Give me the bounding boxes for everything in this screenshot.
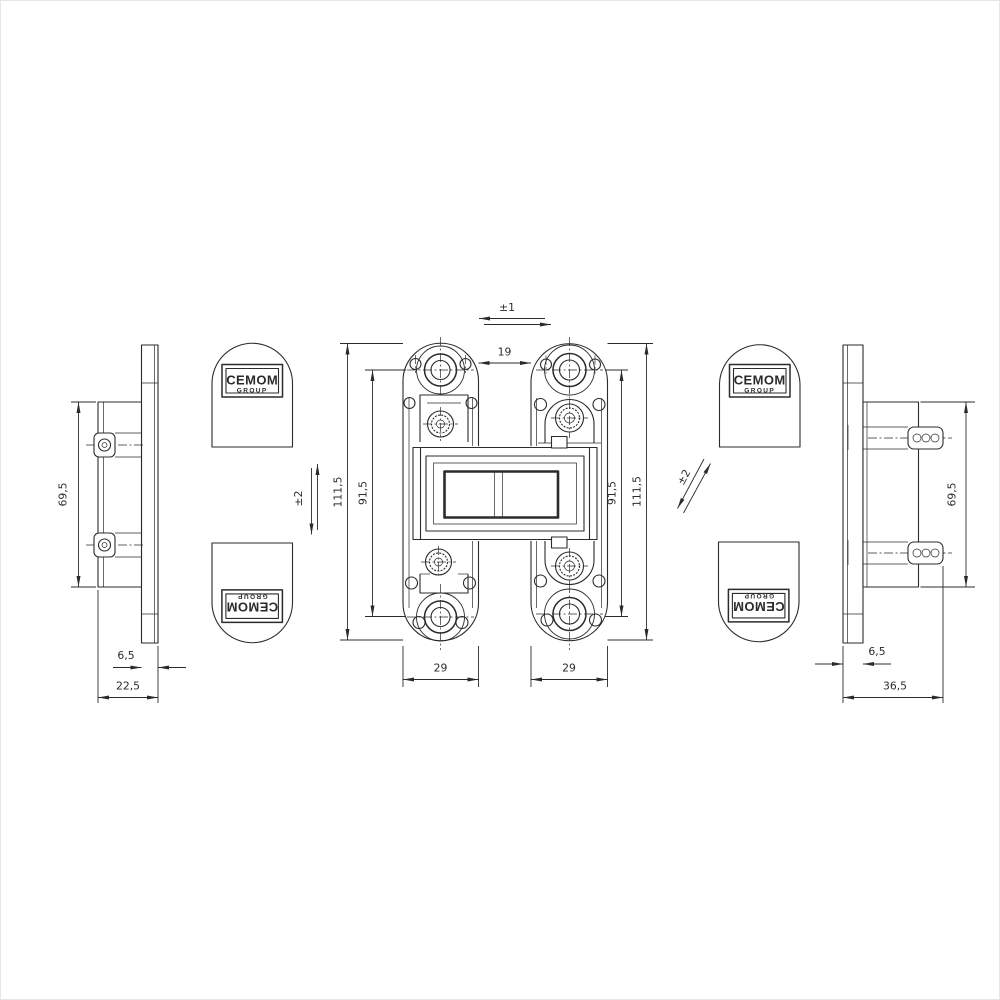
hinge-technical-drawing: 69,5 6,5 22,5 CEMOM GROUP CEMOM GROUP (0, 0, 1000, 1000)
face-plate-edge (843, 345, 863, 643)
brand-sub: GROUP (744, 388, 775, 395)
hinge-body-side (98, 402, 142, 587)
brand-sub: GROUP (237, 388, 268, 395)
dim-label: 111,5 (631, 476, 644, 507)
dim-label: 6,5 (117, 649, 134, 662)
dim-label: 69,5 (57, 482, 70, 506)
dim-label: 29 (434, 662, 448, 675)
brand-name: CEMOM (226, 373, 278, 388)
brand-logo-rotated: CEMOM GROUP (728, 589, 789, 622)
dim-label: ±2 (292, 491, 305, 507)
brand-logo: CEMOM GROUP (222, 365, 283, 398)
spring-clip (94, 533, 115, 557)
dim-label: 6,5 (868, 645, 885, 658)
dim-label: 91,5 (606, 481, 619, 505)
dim-label: 69,5 (946, 482, 959, 506)
brand-logo-rotated: CEMOM GROUP (222, 590, 283, 623)
brand-name: CEMOM (734, 373, 786, 388)
drawing-canvas: 69,5 6,5 22,5 CEMOM GROUP CEMOM GROUP (0, 0, 1000, 1000)
hinge-arm-assembly (410, 437, 601, 549)
brand-name: CEMOM (226, 599, 278, 614)
dim-label: 19 (498, 346, 512, 359)
face-plate-edge (142, 345, 159, 643)
dim-label: 29 (562, 662, 576, 675)
dim-label: 36,5 (883, 680, 907, 693)
brand-name: CEMOM (733, 599, 785, 614)
link-block (445, 472, 559, 518)
dim-label: ±1 (499, 301, 515, 314)
spring-clip (94, 433, 115, 457)
brand-sub: GROUP (237, 592, 268, 599)
dim-label: 111,5 (332, 477, 345, 508)
dim-label: 91,5 (357, 481, 370, 505)
brand-logo: CEMOM GROUP (730, 365, 791, 398)
brand-sub: GROUP (743, 592, 774, 599)
dim-label: 22,5 (116, 680, 140, 693)
